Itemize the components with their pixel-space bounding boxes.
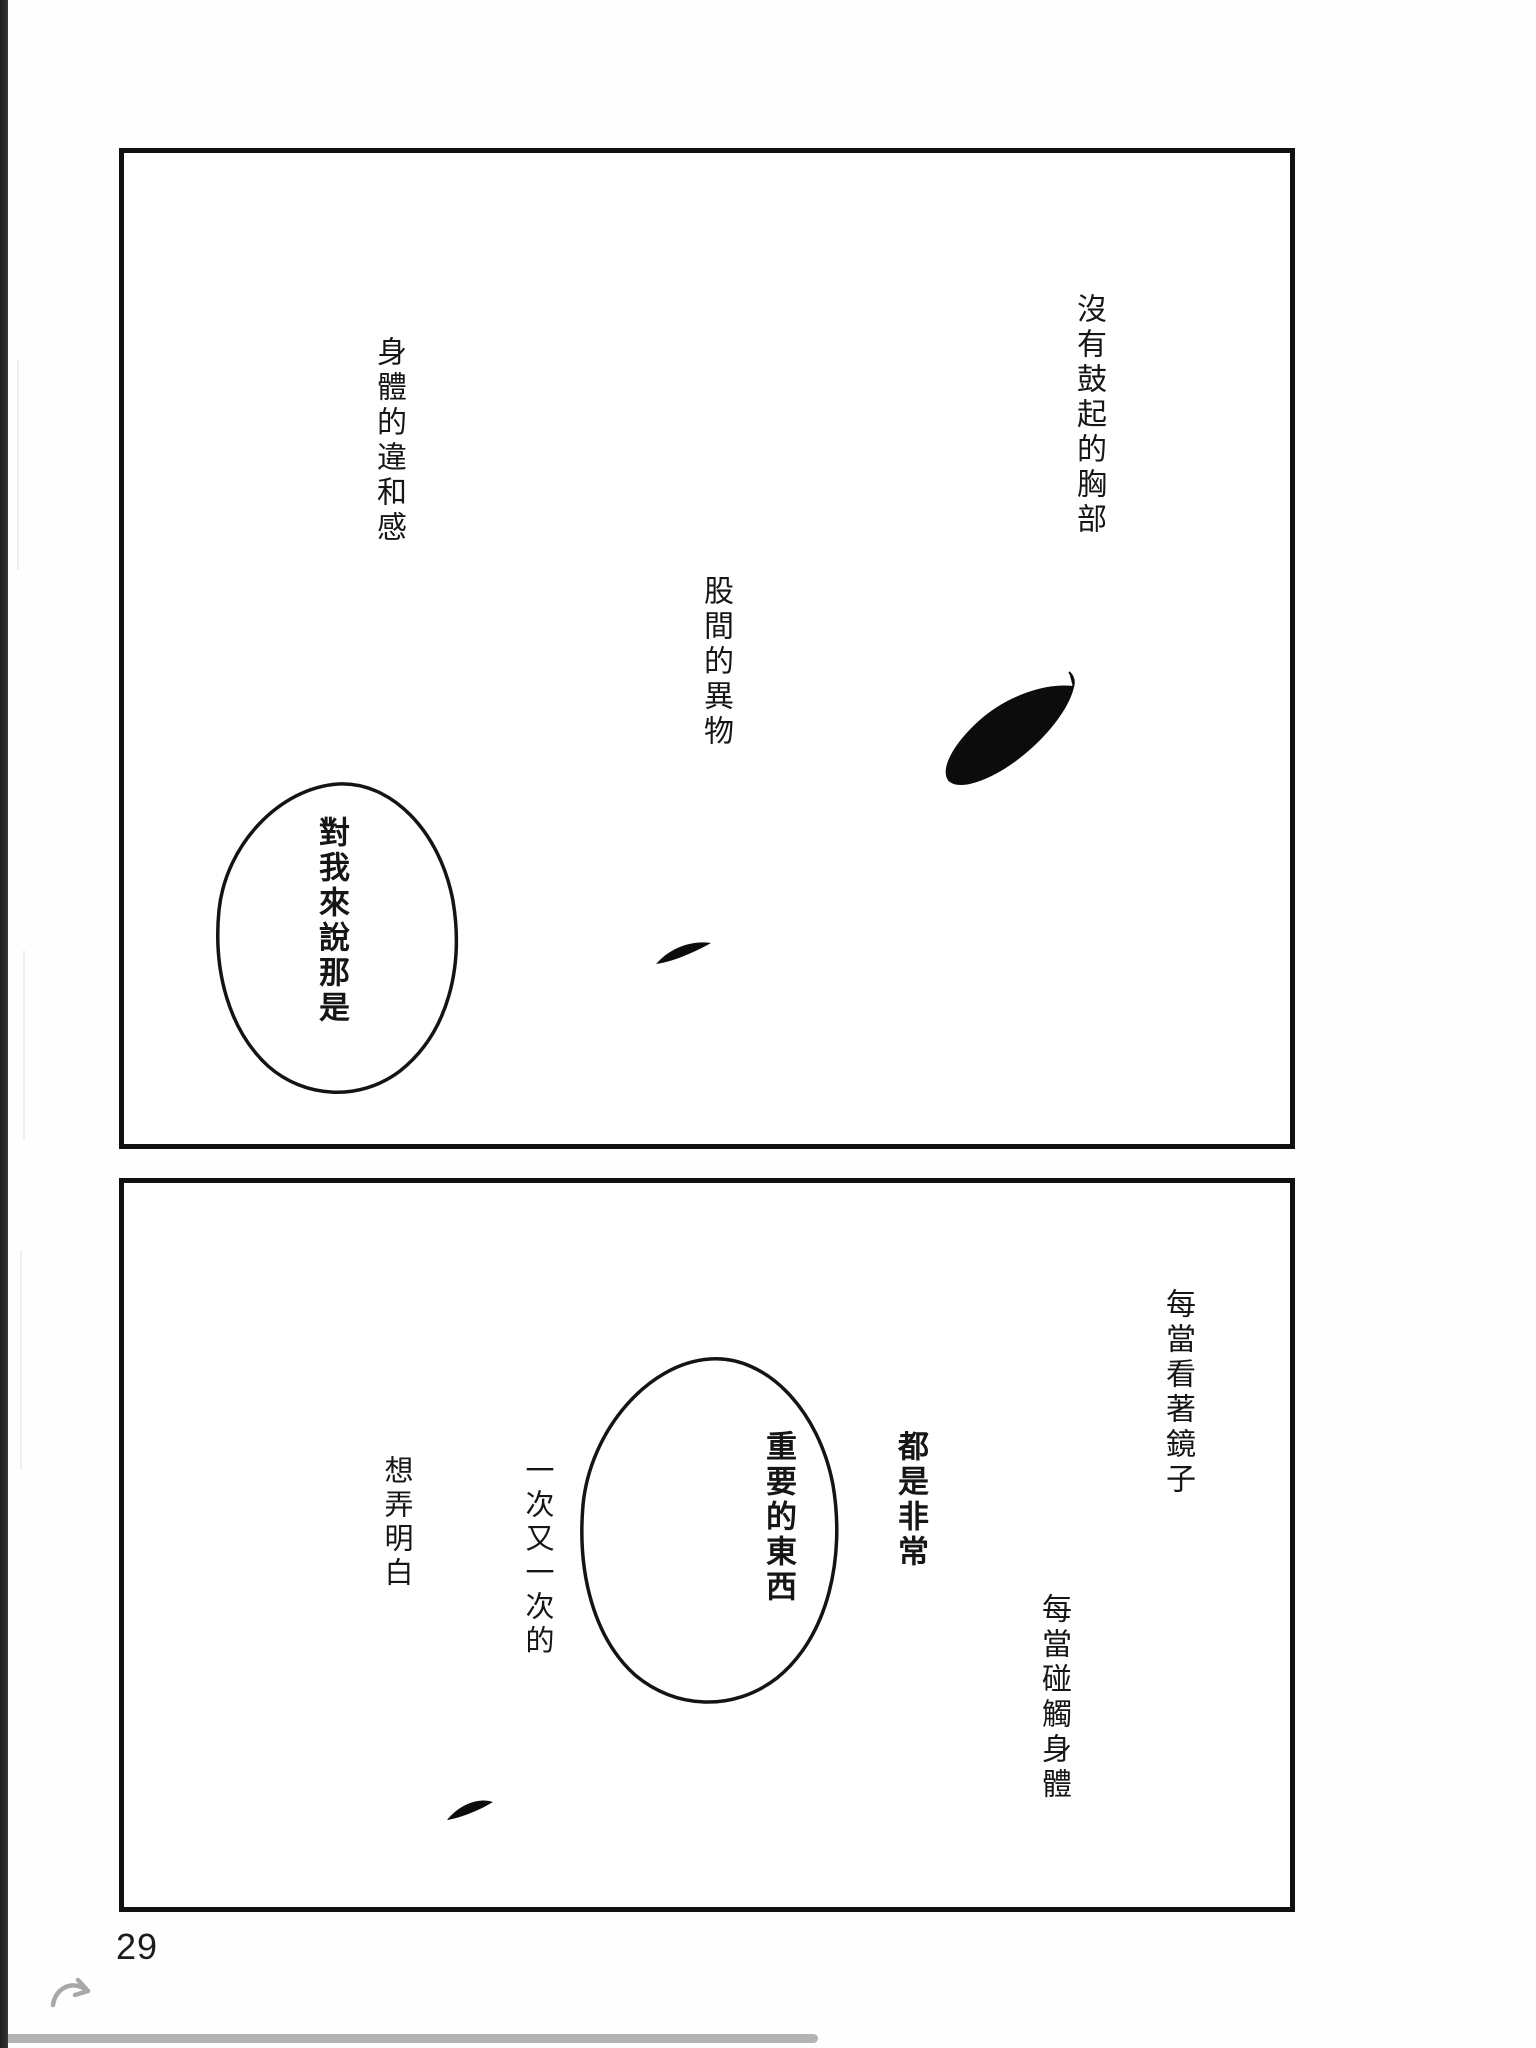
scan-artifact <box>20 1250 22 1470</box>
ink-leaf-shape-small <box>445 1796 495 1822</box>
scan-artifact <box>17 360 19 570</box>
narration-crotch-foreign-object: 股間的異物 <box>698 575 732 750</box>
ink-leaf-shape-small <box>655 938 713 966</box>
again-line-1: 一次又一次的 <box>513 1455 560 1659</box>
manga-page: 沒有鼓起的胸部 身體的違和感 股間的異物 對我來說那是 每當看著鏡子 每當碰觸身… <box>0 0 1536 2048</box>
narration-touching-body: 每當碰觸身體 <box>1036 1593 1070 1803</box>
scan-artifact <box>23 950 25 1140</box>
narration-body-discomfort: 身體的違和感 <box>371 336 405 546</box>
ink-leaf-shape-large <box>938 670 1086 792</box>
bubble-line-1: 都是非常 <box>888 1430 932 1605</box>
reading-progress-bar[interactable] <box>8 2034 818 2043</box>
bubble-line-2: 重要的東西 <box>756 1430 800 1605</box>
narration-no-chest: 沒有鼓起的胸部 <box>1071 293 1105 538</box>
narration-looking-in-mirror: 每當看著鏡子 <box>1160 1288 1194 1498</box>
again-line-2: 想弄明白 <box>372 1455 419 1659</box>
page-number: 29 <box>116 1926 158 1968</box>
speech-bubble-text: 對我來說那是 <box>314 816 349 1026</box>
book-spine-edge <box>0 0 8 2048</box>
speech-bubble-text: 都是非常 重要的東西 <box>668 1430 1020 1605</box>
page-turn-arrow-icon[interactable] <box>48 1976 98 2014</box>
narration-again-and-again: 一次又一次的 想弄明白 <box>278 1455 654 1659</box>
